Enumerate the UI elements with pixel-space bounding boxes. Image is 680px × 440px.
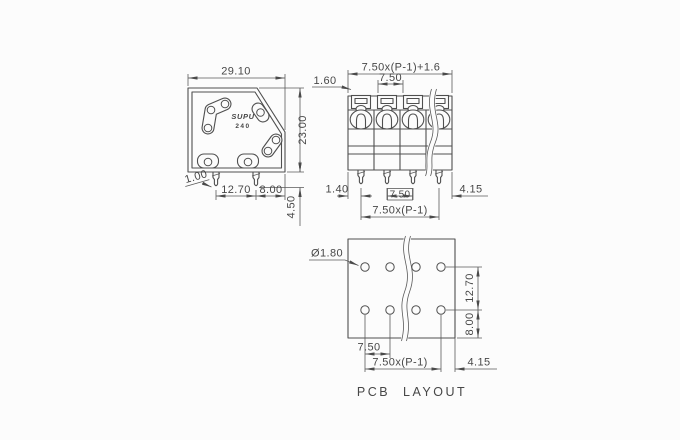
dim-pitch-top: 7.50 [379,72,402,84]
dim-23-00: 23.00 [297,115,309,145]
dim-4-50: 4.50 [286,195,298,218]
dim-pitch-bottom-7-50: 7.50 [390,190,411,201]
dim-wall-1-60: 1.60 [313,75,336,87]
front-view: 7.50x(P-1)+1.6 7.50 1.60 1.40 7.50 4.15 [312,62,488,221]
technical-drawing: SUPU 240 29.10 23.00 4.50 [0,0,680,440]
dimension-front-wall: 1.60 [312,75,351,90]
pcb-pitch-7-50: 7.50 [357,342,380,354]
pcb-hole-dia: Ø1.80 [311,248,343,260]
pcb-break-line [402,236,413,341]
dimension-pin-thickness: 1.00 [182,168,211,187]
dimension-hole-diameter: Ø1.80 [309,248,359,266]
pcb-row-spacing-12-70: 12.70 [464,273,476,303]
pcb-span: 7.50x(P-1) [372,357,427,369]
side-view: SUPU 240 29.10 23.00 4.50 [182,66,309,227]
dim-12-70: 12.70 [221,184,251,196]
dim-left-offset-1-40: 1.40 [325,184,348,196]
pcb-outline [348,239,455,338]
dim-29-10: 29.10 [221,66,251,78]
dimension-pcb-rows: 12.70 8.00 [446,267,482,338]
brand-model: 240 [235,123,250,130]
dim-pin-span: 7.50x(P-1) [372,205,427,217]
dimension-front-pitch-top: 7.50 [378,72,403,93]
brand-logo: SUPU [231,112,254,121]
dim-8-00: 8.00 [259,184,282,196]
pcb-row-edge-8-00: 8.00 [464,312,476,335]
dimension-pin-spacing: 12.70 8.00 [216,174,285,200]
dim-right-offset-4-15: 4.15 [459,184,482,196]
dimension-front-bottom: 1.40 7.50 4.15 7.50x(P-1) [325,172,488,220]
dimension-pcb-columns: 7.50 7.50x(P-1) 4.15 [357,315,497,372]
pcb-right-offset-4-15: 4.15 [467,357,490,369]
side-mount-tabs [198,154,259,168]
pcb-layout-view: Ø1.80 12.70 8.00 7.50 7.50x(P-1) 4.15 PC… [309,236,497,399]
pcb-caption: PCB LAYOUT [357,385,467,399]
